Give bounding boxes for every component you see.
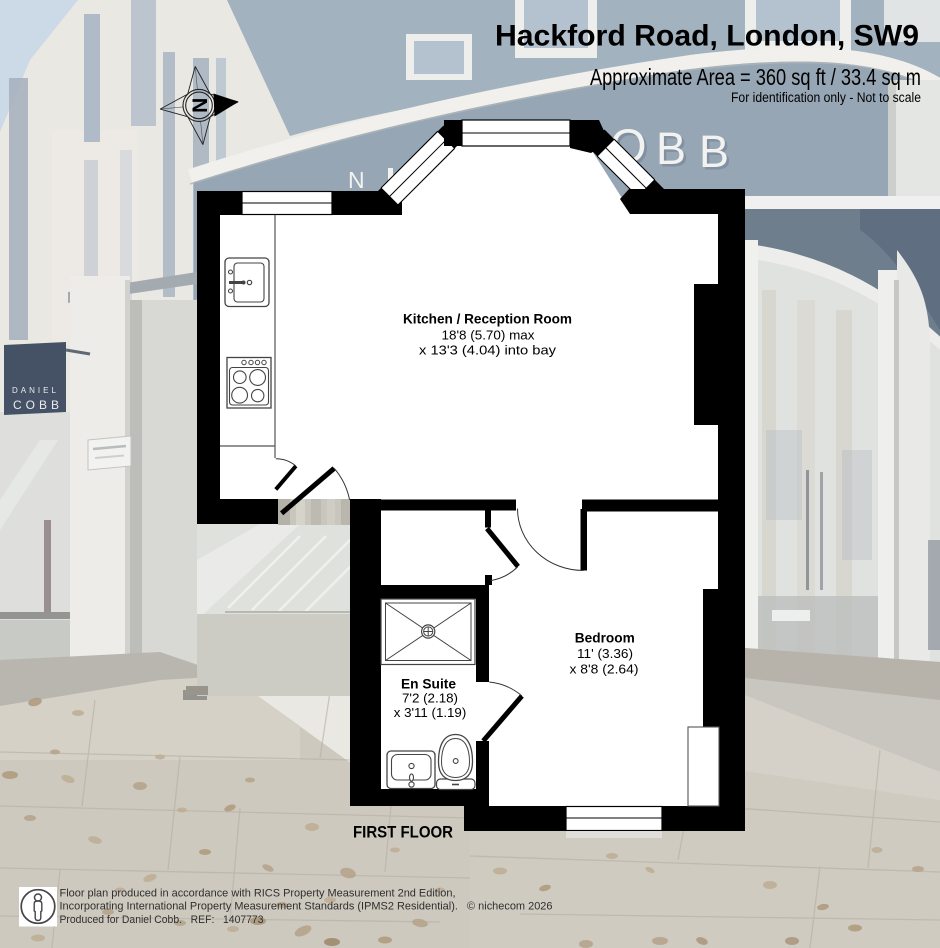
svg-text:Floor plan produced in accorda: Floor plan produced in accordance with R… xyxy=(60,888,456,900)
svg-text:18'8 (5.70) max: 18'8 (5.70) max xyxy=(442,328,536,343)
svg-text:x 3'11 (1.19): x 3'11 (1.19) xyxy=(394,705,467,720)
svg-text:Approximate Area = 360 sq ft /: Approximate Area = 360 sq ft / 33.4 sq m xyxy=(590,64,921,90)
svg-text:FIRST FLOOR: FIRST FLOOR xyxy=(353,824,453,842)
svg-text:En Suite: En Suite xyxy=(401,677,456,692)
svg-text:x 8'8 (2.64): x 8'8 (2.64) xyxy=(570,661,639,676)
svg-text:x 13'3 (4.04) into bay: x 13'3 (4.04) into bay xyxy=(419,343,557,358)
svg-text:Kitchen / Reception Room: Kitchen / Reception Room xyxy=(403,311,572,327)
svg-text:11' (3.36): 11' (3.36) xyxy=(577,646,633,661)
svg-text:For identification only - Not: For identification only - Not to scale xyxy=(731,90,921,105)
svg-text:Hackford Road, London, SW9: Hackford Road, London, SW9 xyxy=(495,20,919,53)
svg-text:Incorporating International Pr: Incorporating International Property Mea… xyxy=(60,901,553,913)
svg-text:7'2 (2.18): 7'2 (2.18) xyxy=(402,691,458,706)
svg-text:Bedroom: Bedroom xyxy=(575,631,635,646)
svg-text:Produced for Daniel Cobb. RE: Produced for Daniel Cobb. REF: 1407773 xyxy=(60,914,264,926)
svg-text:N: N xyxy=(188,98,211,113)
